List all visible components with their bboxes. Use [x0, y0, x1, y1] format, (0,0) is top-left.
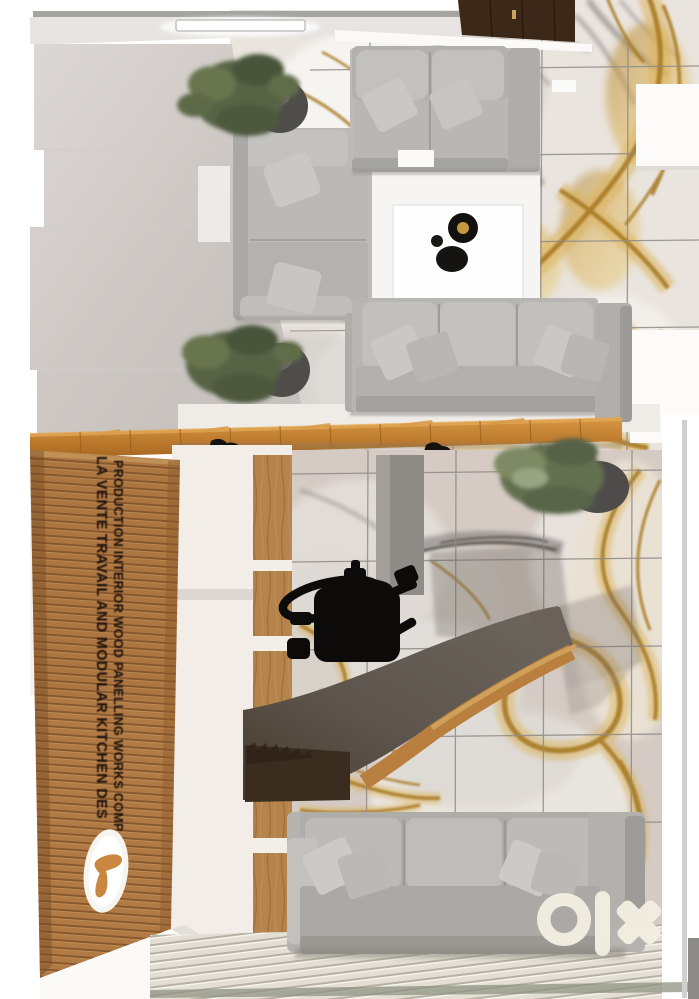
svg-text:LA VENTE TRAVAIL AND MODULAR K: LA VENTE TRAVAIL AND MODULAR KITCHEN DES: [93, 456, 109, 819]
svg-text:PRODUCTION INTERIOR WOOD PANEL: PRODUCTION INTERIOR WOOD PANELLING WORKS…: [111, 460, 125, 832]
